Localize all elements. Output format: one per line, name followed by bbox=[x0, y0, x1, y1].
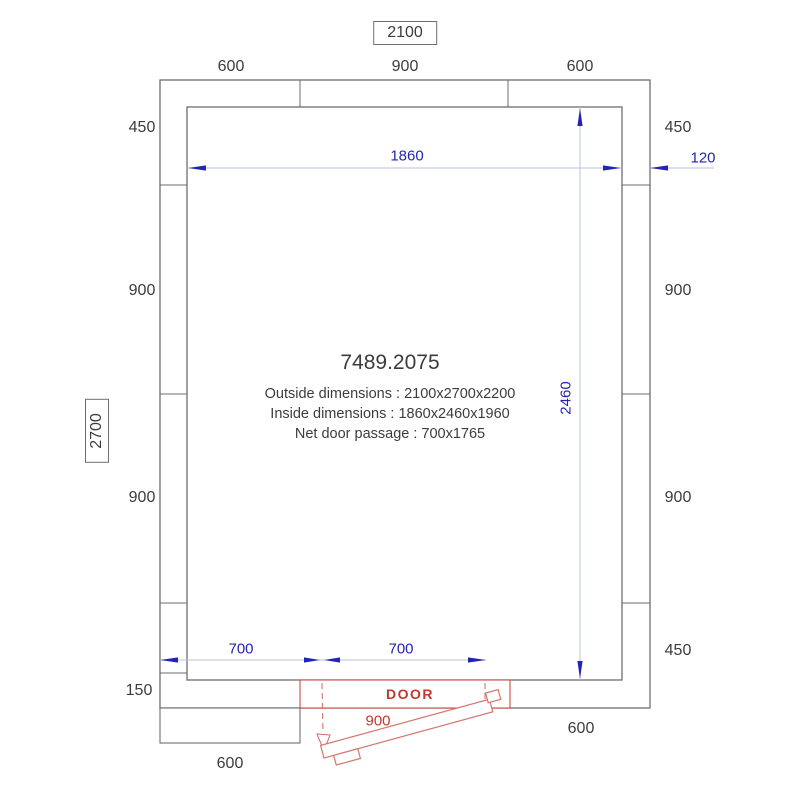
dim-left-4: 150 bbox=[126, 683, 153, 699]
title-block: 7489.2075 Outside dimensions : 2100x2700… bbox=[265, 351, 516, 444]
dim-bottom-right: 600 bbox=[568, 721, 595, 737]
dim-door-width: 900 bbox=[365, 714, 390, 729]
dim-inner-width: 1860 bbox=[390, 149, 423, 164]
dim-right-2: 900 bbox=[665, 283, 692, 299]
dim-left-3: 900 bbox=[129, 490, 156, 506]
model-number: 7489.2075 bbox=[265, 351, 516, 375]
dim-bottom-inner-1: 700 bbox=[228, 642, 253, 657]
dim-right-3: 900 bbox=[665, 490, 692, 506]
dim-left-2: 900 bbox=[129, 283, 156, 299]
dim-top-1: 600 bbox=[218, 59, 245, 75]
dim-top-2: 900 bbox=[392, 59, 419, 75]
outside-dimensions-text: Outside dimensions : 2100x2700x2200 bbox=[265, 384, 516, 404]
inside-dimensions-text: Inside dimensions : 1860x2460x1960 bbox=[265, 404, 516, 424]
dim-bottom-left-panel: 600 bbox=[217, 756, 244, 772]
overall-depth-label: 2700 bbox=[85, 399, 109, 463]
dim-top-3: 600 bbox=[567, 59, 594, 75]
dim-wall-thickness: 120 bbox=[690, 151, 715, 166]
dim-left-1: 450 bbox=[129, 120, 156, 136]
dim-inner-depth: 2460 bbox=[559, 381, 574, 414]
door-passage-text: Net door passage : 700x1765 bbox=[265, 424, 516, 444]
door-label: DOOR bbox=[386, 687, 434, 701]
overall-width-label: 2100 bbox=[373, 21, 437, 45]
floorplan-drawing: 2100 2700 600 900 600 450 900 900 150 45… bbox=[0, 0, 800, 800]
floor-panel bbox=[160, 708, 300, 743]
dim-right-4: 450 bbox=[665, 643, 692, 659]
dim-bottom-inner-2: 700 bbox=[388, 642, 413, 657]
dim-right-1: 450 bbox=[665, 120, 692, 136]
dim-arrow bbox=[650, 165, 668, 170]
